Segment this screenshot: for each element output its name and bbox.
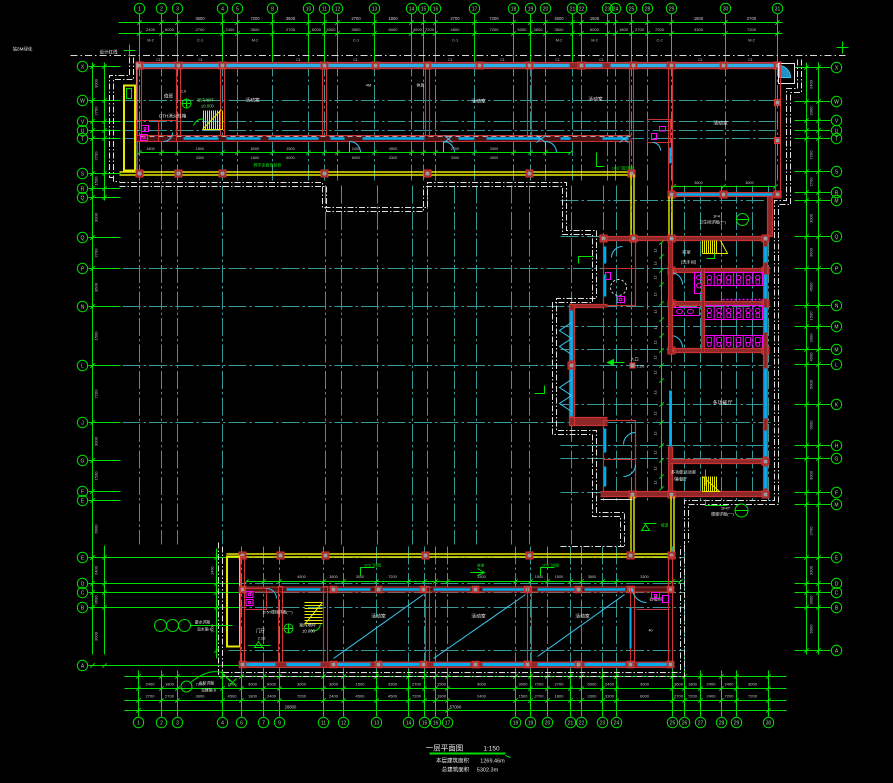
svg-text:12: 12 [654,451,658,455]
svg-text:4500: 4500 [297,575,305,579]
svg-text:3000: 3000 [94,212,99,222]
svg-text:坡道: 坡道 [477,563,485,568]
svg-text:W: W [834,100,839,106]
svg-text:24: 24 [614,721,620,727]
svg-text:C1: C1 [156,58,161,62]
svg-text:2700: 2700 [535,694,545,699]
svg-text:1500: 1500 [809,311,814,321]
svg-text:D: D [835,582,839,588]
svg-text:3000: 3000 [809,595,814,605]
svg-text:20: 20 [545,721,551,727]
svg-text:室内地坪: 室内地坪 [299,622,316,629]
svg-text:25: 25 [670,721,676,727]
svg-text:7200: 7200 [425,27,435,32]
svg-text:活动室: 活动室 [575,613,590,620]
svg-text:2400: 2400 [605,682,615,687]
svg-text:1800: 1800 [619,27,629,32]
svg-text:C: C [835,591,839,597]
svg-text:3000: 3000 [809,213,814,223]
svg-text:2700: 2700 [451,147,459,151]
svg-text:1500: 1500 [555,575,563,579]
svg-text:3300: 3300 [389,156,397,160]
svg-text:3600: 3600 [534,27,544,32]
svg-text:1800: 1800 [388,16,398,21]
svg-text:W: W [80,99,85,105]
svg-text:3300: 3300 [809,333,814,343]
svg-text:1F5T楼梯详图(一): 1F5T楼梯详图(一) [262,610,293,615]
svg-text:2700: 2700 [635,27,645,32]
svg-text:2700: 2700 [747,16,757,21]
svg-text:6000: 6000 [640,694,650,699]
svg-text:1500: 1500 [356,682,366,687]
svg-text:M: M [834,348,838,354]
svg-text:1500: 1500 [535,575,543,579]
svg-text:C1: C1 [353,58,358,62]
svg-text:3300: 3300 [588,694,598,699]
svg-text:2700: 2700 [351,16,361,21]
svg-text:3300: 3300 [640,575,648,579]
svg-text:7200: 7200 [809,150,814,160]
svg-text:Q: Q [81,196,85,202]
svg-text:16: 16 [433,7,439,13]
svg-text:一层平面图: 一层平面图 [426,744,464,753]
svg-text:休息: 休息 [417,82,425,88]
svg-text:4500: 4500 [451,27,461,32]
svg-text:12: 12 [654,341,658,345]
svg-text:40: 40 [649,629,653,633]
svg-text:2400: 2400 [707,694,717,699]
svg-text:2400: 2400 [809,79,814,89]
svg-text:3000: 3000 [94,631,99,641]
svg-text:2700: 2700 [94,151,99,161]
svg-text:设计红线: 设计红线 [100,49,118,56]
svg-text:6000: 6000 [312,27,322,32]
svg-text:多功能厅: 多功能厅 [712,400,732,407]
svg-text:活动室: 活动室 [471,613,486,620]
svg-text:/兼餐厅: /兼餐厅 [674,476,688,483]
svg-text:G: G [81,459,85,465]
svg-text:活动室: 活动室 [713,120,728,127]
svg-text:门厅: 门厅 [256,628,265,635]
svg-text:入口: 入口 [630,357,638,362]
svg-text:25: 25 [629,7,635,13]
svg-text:2400: 2400 [725,682,735,687]
svg-text:1500: 1500 [519,694,529,699]
svg-text:12: 12 [654,356,658,360]
svg-text:3300: 3300 [451,156,459,160]
svg-text:6000: 6000 [267,682,277,687]
svg-text:7200: 7200 [748,694,758,699]
svg-text:10: 10 [306,7,312,13]
svg-text:18: 18 [511,7,517,13]
svg-text:1500: 1500 [437,682,447,687]
svg-text:1F5门详图: 1F5门详图 [364,563,381,568]
svg-text:2400: 2400 [211,567,215,575]
svg-text:12: 12 [341,721,347,727]
svg-text:3000: 3000 [297,682,307,687]
svg-text:12: 12 [654,293,658,297]
svg-text:3600: 3600 [251,27,261,32]
svg-text:N: N [81,305,85,311]
svg-text:7200: 7200 [535,682,545,687]
svg-text:23: 23 [605,7,611,13]
svg-text:1.0: 1.0 [181,90,186,94]
svg-text:7200: 7200 [688,694,698,699]
svg-text:本层建筑面积: 本层建筑面积 [436,757,470,765]
svg-text:1F4: 1F4 [713,214,721,219]
svg-text:M-2: M-2 [748,39,755,43]
svg-text:2400: 2400 [707,682,717,687]
svg-text:4500: 4500 [352,27,362,32]
svg-text:3600: 3600 [94,282,99,292]
svg-text:3: 3 [176,7,179,13]
svg-text:散水详图: 散水详图 [195,620,210,625]
svg-text:1.20: 1.20 [637,364,646,369]
svg-text:28: 28 [645,7,651,13]
svg-text:3000: 3000 [519,682,529,687]
svg-text:3000: 3000 [94,436,99,446]
svg-text:30: 30 [723,7,729,13]
svg-text:C-1: C-1 [197,39,203,43]
svg-text:M-2: M-2 [252,39,259,43]
svg-text:1800: 1800 [165,682,175,687]
svg-text:2400: 2400 [94,565,99,575]
svg-text:1F4T: 1F4T [721,506,731,511]
svg-text:3000: 3000 [248,682,258,687]
svg-text:3600: 3600 [745,181,753,185]
svg-text:2700: 2700 [94,106,99,116]
svg-text:M: M [834,199,838,205]
svg-text:9: 9 [278,721,281,727]
svg-text:1500: 1500 [94,176,99,186]
svg-text:2400: 2400 [146,27,156,32]
svg-text:17: 17 [445,721,451,727]
svg-text:13: 13 [374,721,380,727]
svg-text:26: 26 [682,721,688,727]
svg-text:1800: 1800 [248,694,258,699]
svg-text:12: 12 [654,391,658,395]
svg-text:3300: 3300 [490,147,498,151]
svg-text:28800: 28800 [285,705,297,710]
svg-text:17: 17 [472,7,478,13]
svg-text:2: 2 [160,721,163,727]
svg-text:6000: 6000 [327,27,337,32]
svg-text:1269.46m: 1269.46m [480,759,505,765]
svg-text:3000: 3000 [477,682,487,687]
svg-text:2700: 2700 [165,694,175,699]
svg-text:T: T [81,137,84,143]
svg-text:3600: 3600 [588,575,596,579]
svg-text:3300: 3300 [196,156,204,160]
svg-text:2400: 2400 [226,27,236,32]
svg-text:3000: 3000 [94,78,99,88]
svg-text:2700: 2700 [809,177,814,187]
svg-text:29: 29 [669,7,675,13]
svg-text:30: 30 [766,721,772,727]
svg-text:3300: 3300 [809,106,814,116]
svg-text:4500: 4500 [388,694,398,699]
svg-text:57000: 57000 [450,705,462,710]
svg-text:值班: 值班 [164,93,173,100]
svg-text:1800: 1800 [555,694,565,699]
svg-text:3600: 3600 [809,247,814,257]
svg-text:7200: 7200 [725,694,735,699]
svg-text:C: C [81,591,85,597]
svg-text:7200: 7200 [489,16,499,21]
svg-text:3600: 3600 [674,682,684,687]
svg-text:31: 31 [775,7,781,13]
svg-text:6000: 6000 [94,524,99,534]
svg-text:±0.000: ±0.000 [201,104,214,109]
svg-text:2400: 2400 [329,694,339,699]
svg-text:12: 12 [654,432,658,436]
svg-text:6000: 6000 [352,156,360,160]
svg-text:2700: 2700 [809,526,814,536]
svg-text:T: T [835,137,838,143]
svg-text:2700: 2700 [146,694,156,699]
svg-text:15: 15 [421,7,427,13]
svg-text:20: 20 [543,7,549,13]
svg-text:3600: 3600 [195,16,205,21]
svg-text:22: 22 [579,7,585,13]
svg-text:楼梯详图(一): 楼梯详图(一) [711,511,734,517]
svg-text:24: 24 [613,7,619,13]
svg-text:2400: 2400 [267,694,277,699]
svg-text:3600: 3600 [413,27,423,32]
svg-text:1500: 1500 [94,331,99,341]
svg-text:总建筑面积: 总建筑面积 [442,766,470,774]
svg-text:C-1: C-1 [452,39,458,43]
svg-text:12: 12 [654,467,658,471]
svg-text:F: F [835,491,838,497]
svg-text:6000: 6000 [588,682,598,687]
svg-text:教学走廊宽装修: 教学走廊宽装修 [254,162,282,168]
svg-text:GTH消火栓箱: GTH消火栓箱 [159,113,187,120]
svg-text:7200: 7200 [747,27,757,32]
svg-text:3600: 3600 [329,575,337,579]
svg-text:2400: 2400 [146,682,156,687]
svg-text:L: L [835,363,838,369]
svg-text:6000: 6000 [590,27,600,32]
svg-text:G: G [835,457,839,463]
svg-text:见建施-8: 见建施-8 [201,688,216,693]
svg-text:5: 5 [236,7,239,13]
svg-text:21: 21 [570,7,576,13]
svg-text:4500: 4500 [356,694,366,699]
svg-text:1500: 1500 [286,147,294,151]
svg-text:4: 4 [221,721,224,727]
svg-text:前室: 前室 [682,249,690,256]
svg-text:1:150: 1:150 [483,746,500,753]
svg-text:活动室: 活动室 [471,98,486,105]
svg-text:C-1: C-1 [353,39,359,43]
svg-text:2: 2 [160,7,163,13]
svg-text:6000: 6000 [809,624,814,634]
svg-text:6000: 6000 [286,156,294,160]
svg-text:C1: C1 [500,58,505,62]
svg-text:8: 8 [271,7,274,13]
svg-text:2400: 2400 [477,694,487,699]
svg-text:1500: 1500 [196,147,204,151]
svg-text:1: 1 [138,7,141,13]
svg-text:11: 11 [321,721,326,727]
svg-text:12: 12 [654,371,658,375]
svg-text:活动室: 活动室 [371,613,386,620]
svg-text:D: D [81,582,85,588]
svg-text:见水施-1: 见水施-1 [197,627,212,632]
svg-text:多功能活动室: 多功能活动室 [671,469,696,476]
svg-text:3300: 3300 [477,575,485,579]
svg-text:C1: C1 [599,58,604,62]
svg-text:4M: 4M [366,83,372,88]
svg-text:C1: C1 [555,58,560,62]
svg-text:3300: 3300 [809,565,814,575]
svg-text:6000: 6000 [165,27,175,32]
svg-text:活动室: 活动室 [588,96,603,103]
svg-text:卫生间详图(一): 卫生间详图(一) [699,219,726,225]
svg-text:M: M [834,325,838,331]
svg-text:14: 14 [409,7,415,13]
svg-text:6000: 6000 [518,27,528,32]
svg-text:19: 19 [528,721,534,727]
svg-text:29: 29 [734,721,740,727]
svg-text:22: 22 [579,721,585,727]
svg-text:7200: 7200 [490,27,500,32]
svg-text:7200: 7200 [655,27,665,32]
svg-text:7200: 7200 [412,694,422,699]
svg-text:2700: 2700 [674,694,684,699]
svg-text:27: 27 [698,721,704,727]
svg-text:7200: 7200 [94,389,99,399]
svg-text:3000: 3000 [356,575,364,579]
svg-text:14: 14 [406,721,412,727]
svg-text:7200: 7200 [297,694,307,699]
svg-text:(洗手间): (洗手间) [681,259,697,266]
svg-text:12: 12 [335,7,341,13]
svg-text:13: 13 [372,7,378,13]
svg-text:11: 11 [322,7,327,13]
svg-text:3600: 3600 [94,595,99,605]
svg-text:18: 18 [513,721,519,727]
svg-text:3300: 3300 [388,682,398,687]
svg-text:6: 6 [240,721,243,727]
svg-text:1800: 1800 [694,16,704,21]
svg-text:M-2: M-2 [147,39,154,43]
svg-text:活动室: 活动室 [245,97,260,104]
svg-text:12: 12 [654,481,658,485]
svg-text:2400: 2400 [352,147,360,151]
svg-text:3000: 3000 [640,682,650,687]
svg-text:12: 12 [654,310,658,314]
svg-text:3600: 3600 [286,16,296,21]
svg-text:4500: 4500 [228,694,238,699]
svg-text:3000: 3000 [329,682,339,687]
svg-text:1500: 1500 [94,471,99,481]
svg-text:N: N [835,304,839,310]
svg-text:4: 4 [221,7,224,13]
svg-text:2700: 2700 [196,27,206,32]
svg-text:15: 15 [422,721,428,727]
svg-text:C1: C1 [448,58,453,62]
svg-text:4500: 4500 [389,147,397,151]
svg-text:5302.3m: 5302.3m [477,768,499,774]
svg-text:±0.000: ±0.000 [302,629,315,634]
svg-text:H: H [835,444,839,450]
svg-text:C1: C1 [698,58,703,62]
svg-text:12: 12 [654,249,658,253]
svg-text:M-2: M-2 [591,39,598,43]
svg-text:3300: 3300 [694,27,704,32]
svg-text:4500: 4500 [490,156,498,160]
svg-text:Q: Q [81,236,85,242]
svg-text:台阶详图: 台阶详图 [199,681,214,686]
svg-text:12: 12 [654,262,658,266]
svg-text:6000: 6000 [809,420,814,430]
svg-text:1800: 1800 [688,682,698,687]
svg-text:C1: C1 [296,58,301,62]
svg-text:3000: 3000 [748,682,758,687]
svg-text:7200: 7200 [250,16,260,21]
svg-text:1: 1 [137,721,140,727]
svg-text:M-2: M-2 [556,39,563,43]
svg-text:7: 7 [262,721,265,727]
svg-text:21: 21 [568,721,574,727]
svg-text:28: 28 [719,721,725,727]
svg-text:C-2: C-2 [656,39,662,43]
svg-text:2700: 2700 [286,27,296,32]
svg-text:2700: 2700 [94,248,99,258]
svg-text:C1: C1 [748,58,753,62]
svg-text:3600: 3600 [555,27,565,32]
svg-text:23: 23 [600,721,606,727]
svg-text:6000: 6000 [389,27,399,32]
svg-text:1800: 1800 [437,694,447,699]
svg-text:1500: 1500 [590,16,600,21]
svg-text:3600: 3600 [196,694,206,699]
svg-text:2700: 2700 [555,682,565,687]
svg-text:3000: 3000 [809,470,814,480]
svg-text:7200: 7200 [388,575,396,579]
svg-text:4500: 4500 [809,282,814,292]
svg-text:3: 3 [176,721,179,727]
svg-text:L: L [81,364,84,370]
svg-text:12: 12 [654,326,658,330]
svg-text:2700: 2700 [450,16,460,21]
svg-text:4500: 4500 [809,352,814,362]
svg-text:坡道: 坡道 [661,523,669,528]
svg-text:4500: 4500 [554,16,564,21]
svg-text:12: 12 [654,412,658,416]
svg-text:3300: 3300 [605,694,615,699]
svg-text:3600: 3600 [694,181,702,185]
svg-text:6000: 6000 [809,379,814,389]
svg-text:站5M绿化: 站5M绿化 [13,46,33,53]
svg-text:12: 12 [654,276,658,280]
svg-text:室内地坪: 室内地坪 [197,97,214,104]
svg-text:16: 16 [433,721,439,727]
svg-text:1F5门详图: 1F5门详图 [542,563,559,568]
svg-text:2700: 2700 [412,682,422,687]
svg-text:2.10: 2.10 [258,636,267,641]
svg-text:6000: 6000 [251,147,259,151]
svg-text:R: R [81,187,85,193]
svg-text:Q: Q [835,235,839,241]
svg-text:M: M [834,503,838,509]
svg-text:C1: C1 [198,58,203,62]
svg-text:1800: 1800 [146,147,154,151]
svg-text:19: 19 [528,7,534,13]
svg-text:1800: 1800 [251,156,259,160]
